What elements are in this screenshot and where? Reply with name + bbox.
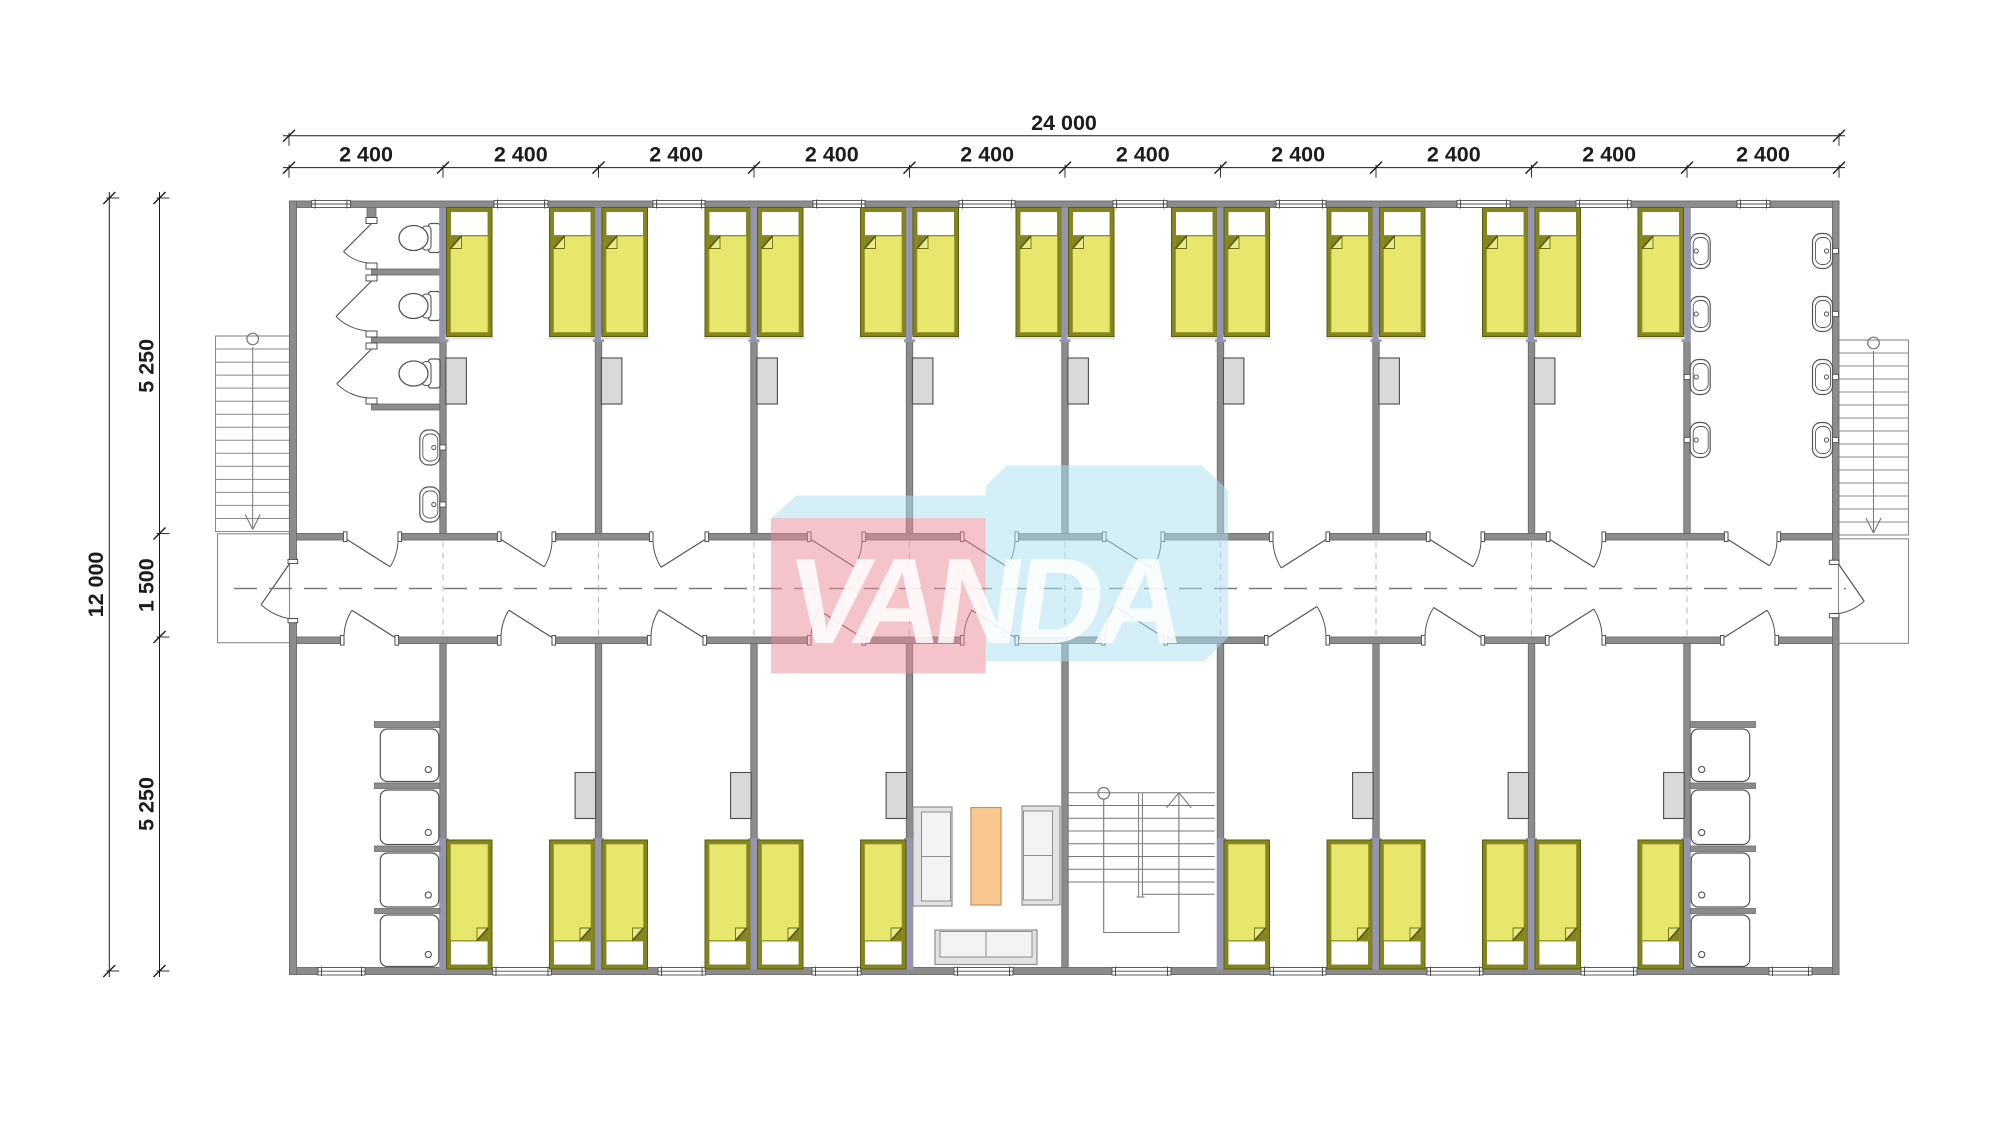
svg-text:2 400: 2 400 [339, 143, 393, 167]
svg-text:12 000: 12 000 [84, 552, 108, 618]
svg-text:2 400: 2 400 [805, 143, 859, 167]
svg-text:2 400: 2 400 [960, 143, 1014, 167]
svg-text:5 250: 5 250 [135, 777, 159, 831]
svg-text:24 000: 24 000 [1031, 111, 1097, 135]
svg-text:2 400: 2 400 [1582, 143, 1636, 167]
svg-text:2 400: 2 400 [1427, 143, 1481, 167]
svg-text:5 250: 5 250 [135, 339, 159, 393]
svg-text:1 500: 1 500 [135, 558, 159, 612]
svg-text:VANDA: VANDA [780, 533, 1193, 669]
svg-text:2 400: 2 400 [649, 143, 703, 167]
svg-text:2 400: 2 400 [1736, 143, 1790, 167]
svg-text:2 400: 2 400 [1116, 143, 1170, 167]
svg-text:2 400: 2 400 [494, 143, 548, 167]
svg-text:2 400: 2 400 [1271, 143, 1325, 167]
